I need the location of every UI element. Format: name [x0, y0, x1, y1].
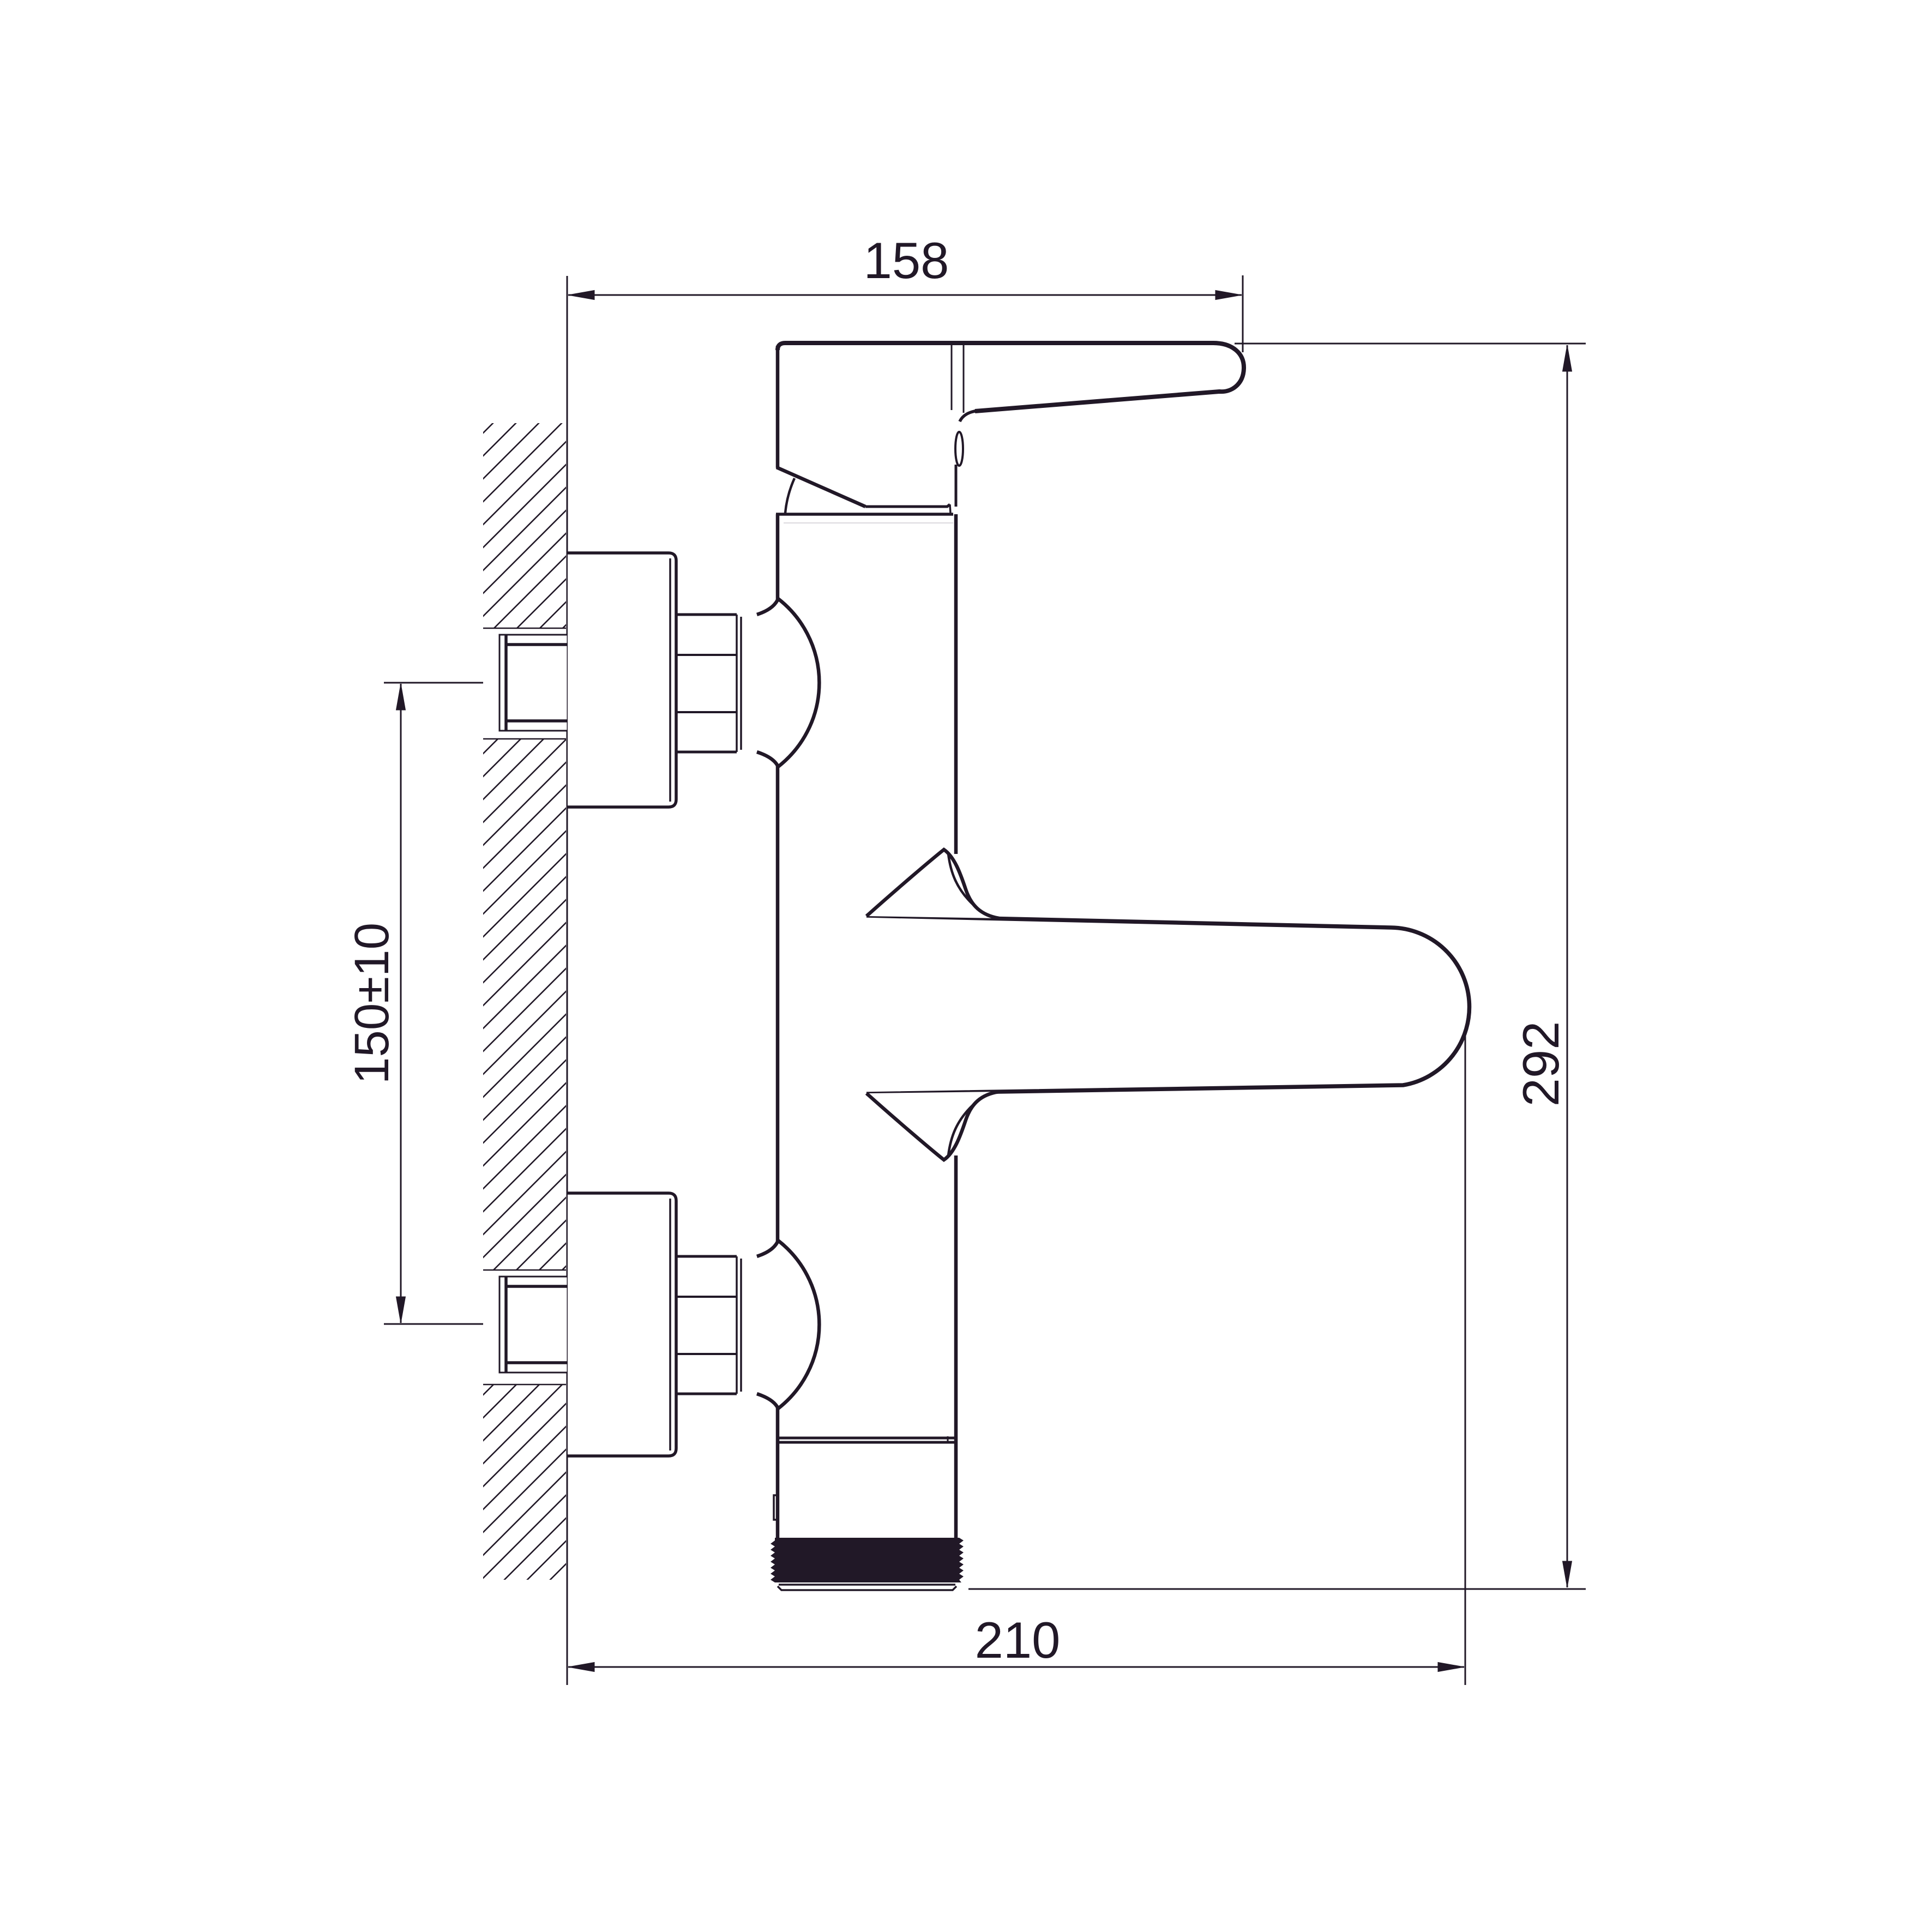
svg-text:150±10: 150±10	[344, 923, 399, 1084]
svg-text:158: 158	[864, 232, 949, 289]
svg-text:292: 292	[1512, 1021, 1569, 1107]
svg-text:210: 210	[975, 1611, 1061, 1669]
